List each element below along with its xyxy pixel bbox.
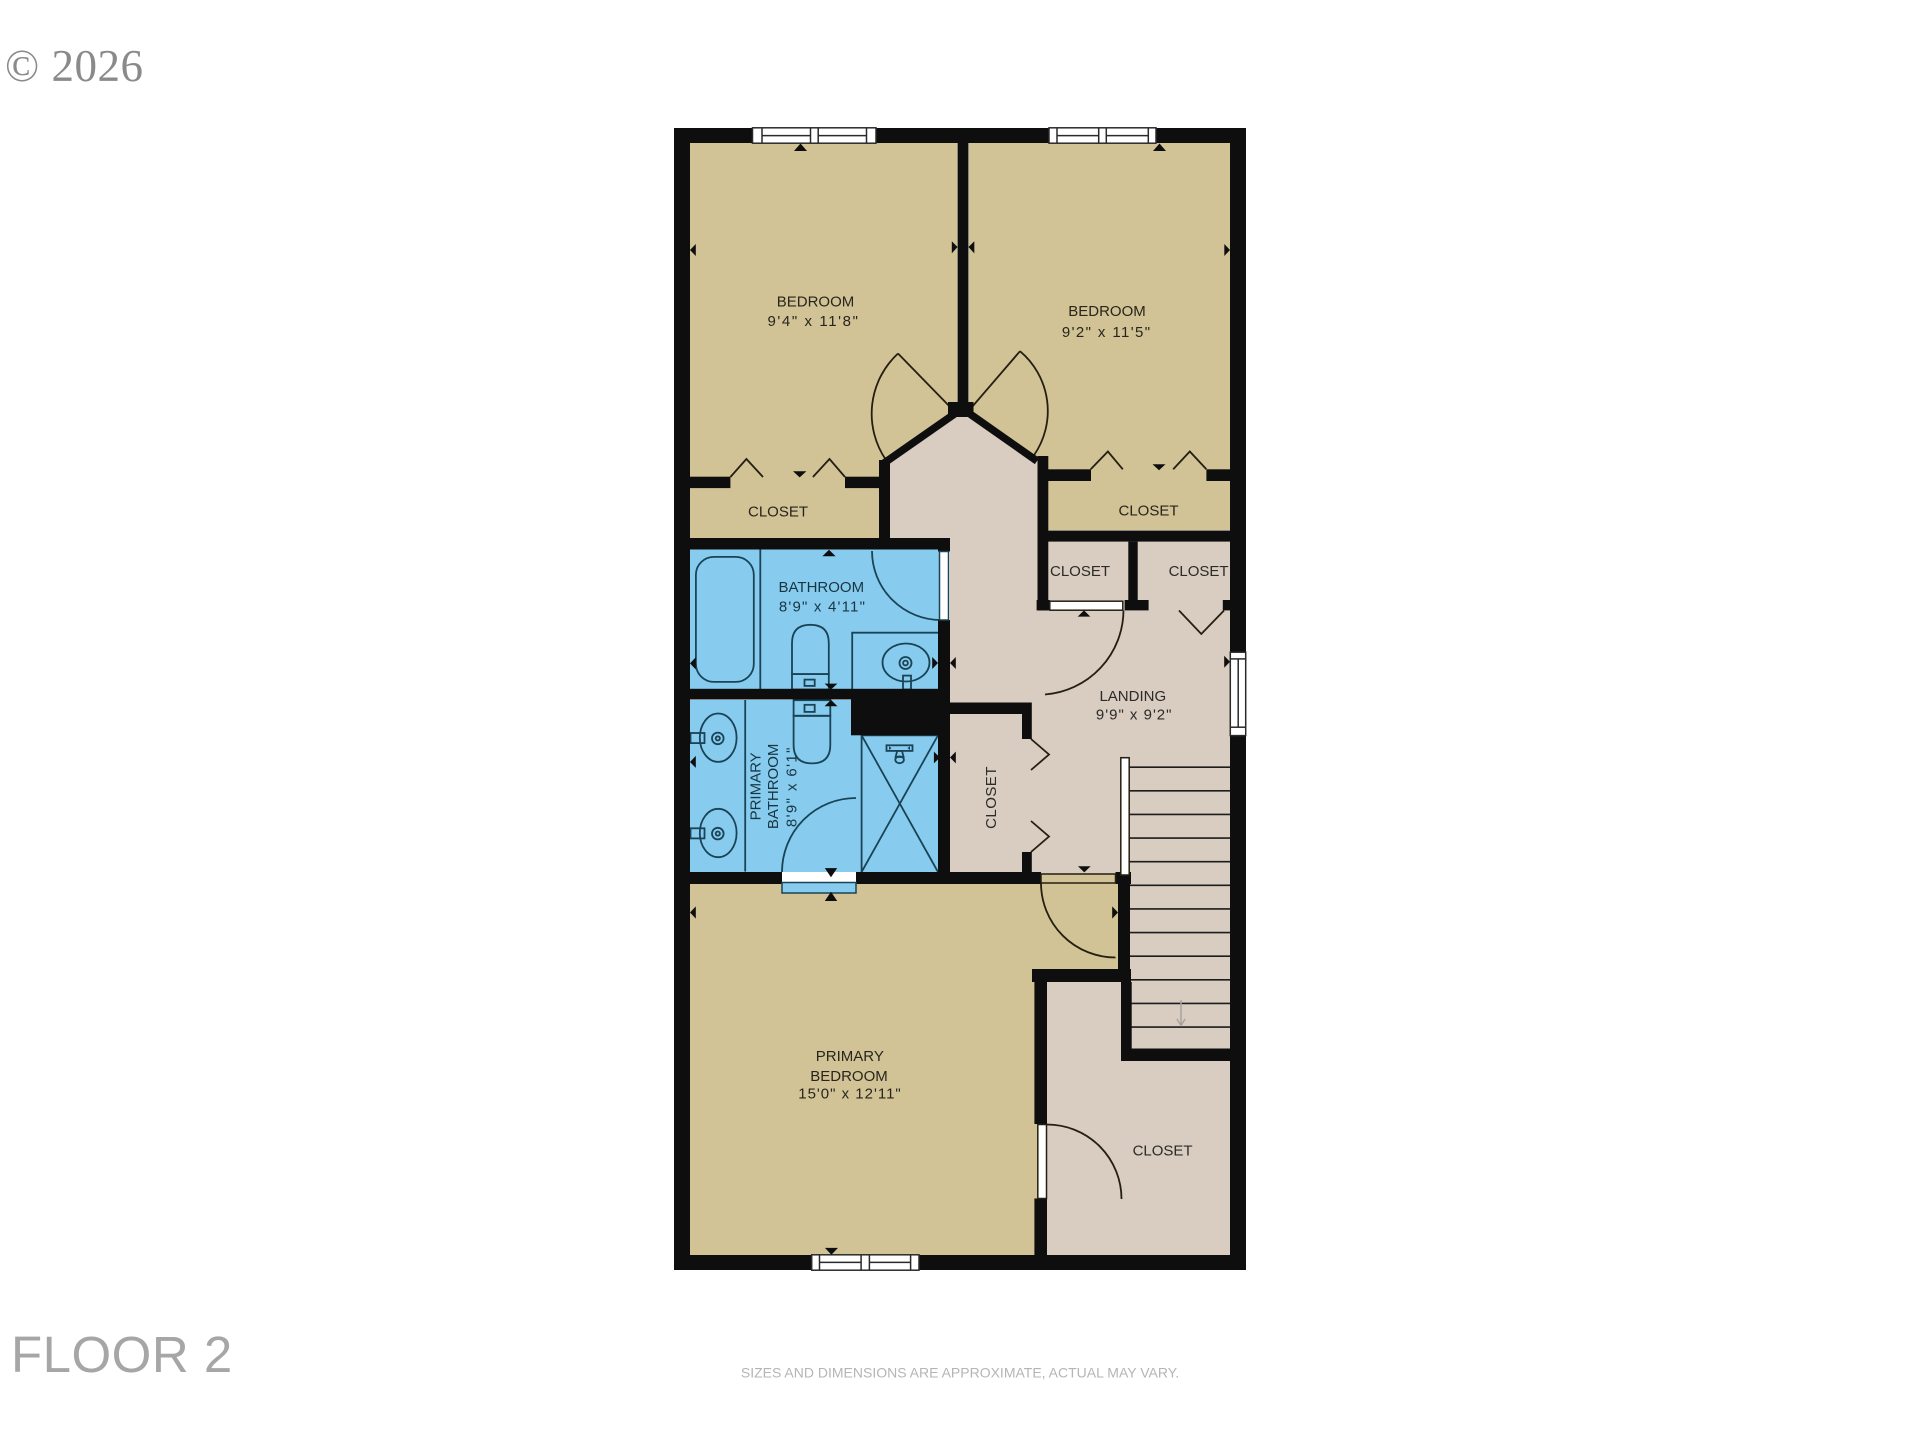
svg-text:© 2026: © 2026 — [5, 41, 143, 91]
svg-text:9'9" x 9'2": 9'9" x 9'2" — [1096, 707, 1173, 724]
svg-text:8'9" x 6'1": 8'9" x 6'1" — [784, 746, 801, 827]
svg-text:BATHROOM: BATHROOM — [779, 579, 865, 596]
svg-text:SIZES AND DIMENSIONS ARE APPRO: SIZES AND DIMENSIONS ARE APPROXIMATE, AC… — [741, 1365, 1179, 1381]
svg-text:15'0" x 12'11": 15'0" x 12'11" — [798, 1086, 902, 1103]
svg-text:8'9" x 4'11": 8'9" x 4'11" — [779, 599, 866, 616]
svg-text:CLOSET: CLOSET — [1133, 1143, 1193, 1160]
svg-text:CLOSET: CLOSET — [748, 504, 808, 521]
svg-text:BEDROOM: BEDROOM — [810, 1068, 888, 1085]
svg-text:BEDROOM: BEDROOM — [1068, 303, 1146, 320]
svg-text:LANDING: LANDING — [1099, 688, 1166, 705]
svg-text:BATHROOM: BATHROOM — [765, 744, 782, 830]
svg-text:CLOSET: CLOSET — [1050, 563, 1110, 580]
svg-text:CLOSET: CLOSET — [983, 766, 1000, 829]
svg-text:9'4" x 11'8": 9'4" x 11'8" — [767, 313, 859, 330]
svg-text:FLOOR 2: FLOOR 2 — [11, 1326, 233, 1383]
svg-text:PRIMARY: PRIMARY — [816, 1048, 884, 1065]
svg-text:PRIMARY: PRIMARY — [748, 752, 765, 820]
svg-text:CLOSET: CLOSET — [1118, 503, 1178, 520]
svg-text:BEDROOM: BEDROOM — [777, 294, 855, 311]
svg-text:9'2" x 11'5": 9'2" x 11'5" — [1062, 324, 1152, 341]
svg-text:CLOSET: CLOSET — [1169, 563, 1229, 580]
